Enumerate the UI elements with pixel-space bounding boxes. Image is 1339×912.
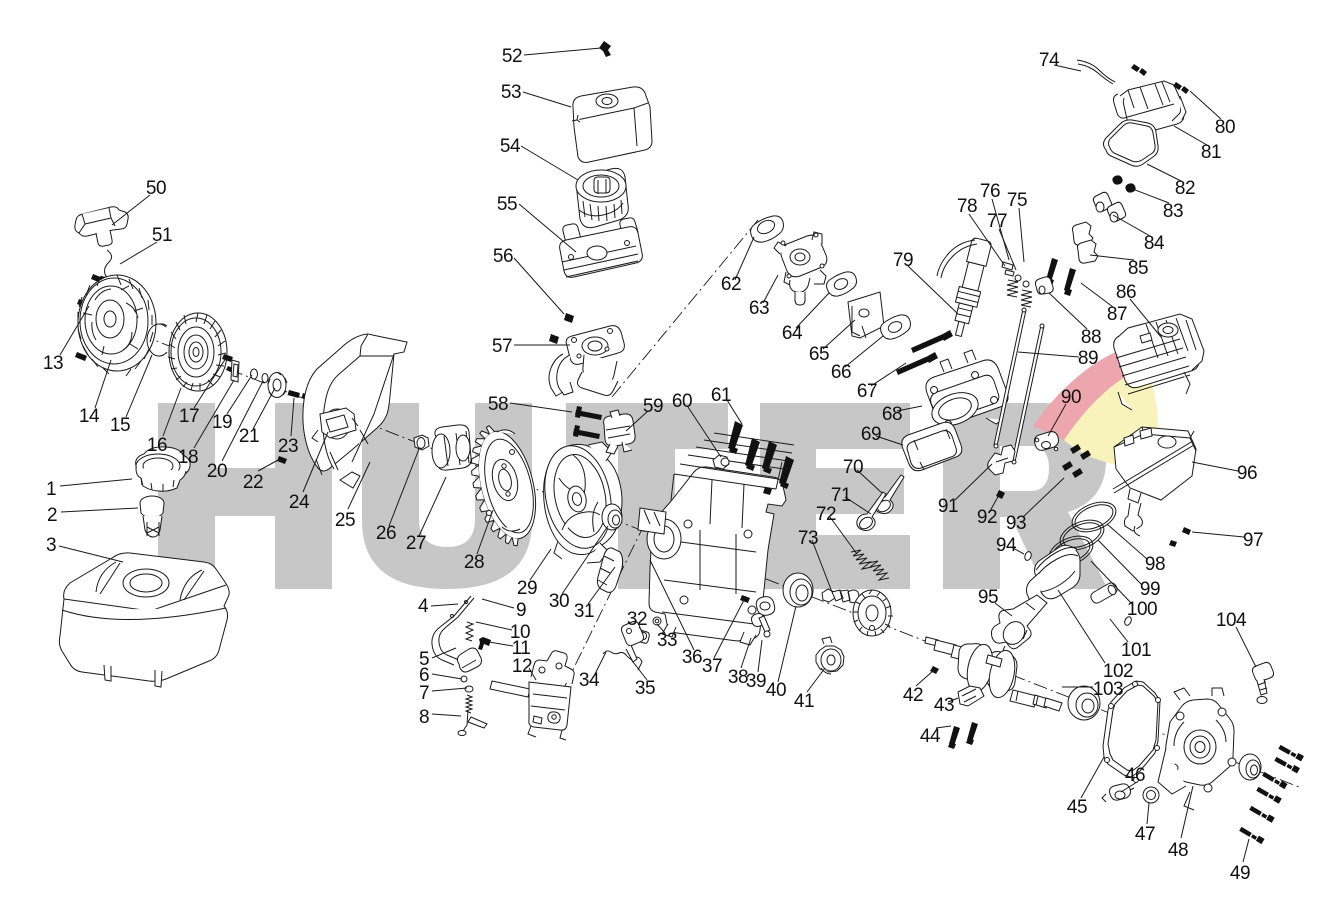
svg-text:56: 56 — [493, 246, 513, 267]
svg-text:13: 13 — [43, 353, 63, 374]
svg-text:97: 97 — [1243, 530, 1263, 551]
svg-text:37: 37 — [702, 656, 722, 677]
svg-text:95: 95 — [978, 587, 998, 608]
svg-text:77: 77 — [987, 211, 1007, 232]
svg-text:92: 92 — [977, 507, 997, 528]
svg-text:71: 71 — [831, 485, 851, 506]
svg-text:80: 80 — [1215, 117, 1235, 138]
svg-text:9: 9 — [516, 600, 526, 621]
svg-text:48: 48 — [1168, 840, 1188, 861]
svg-text:68: 68 — [882, 404, 902, 425]
svg-text:83: 83 — [1163, 201, 1183, 222]
svg-text:27: 27 — [406, 533, 426, 554]
svg-text:8: 8 — [419, 707, 429, 728]
svg-text:18: 18 — [178, 447, 198, 468]
svg-text:12: 12 — [512, 656, 532, 677]
svg-text:30: 30 — [549, 591, 569, 612]
svg-text:103: 103 — [1093, 679, 1123, 700]
svg-text:72: 72 — [816, 504, 836, 525]
svg-text:34: 34 — [579, 670, 600, 691]
svg-text:14: 14 — [79, 406, 100, 427]
svg-text:23: 23 — [278, 436, 298, 457]
svg-text:73: 73 — [798, 528, 818, 549]
svg-text:62: 62 — [721, 274, 741, 295]
svg-text:67: 67 — [857, 381, 877, 402]
svg-text:99: 99 — [1140, 579, 1160, 600]
svg-text:55: 55 — [497, 194, 517, 215]
svg-text:7: 7 — [419, 683, 429, 704]
svg-text:65: 65 — [809, 344, 829, 365]
svg-text:40: 40 — [766, 680, 786, 701]
svg-text:76: 76 — [980, 181, 1000, 202]
svg-text:20: 20 — [207, 461, 227, 482]
svg-text:90: 90 — [1061, 387, 1081, 408]
svg-text:57: 57 — [492, 336, 512, 357]
svg-text:35: 35 — [635, 678, 655, 699]
svg-text:96: 96 — [1237, 463, 1257, 484]
svg-text:104: 104 — [1216, 610, 1247, 631]
svg-text:70: 70 — [843, 457, 863, 478]
svg-text:60: 60 — [672, 391, 692, 412]
svg-text:46: 46 — [1125, 765, 1145, 786]
svg-text:63: 63 — [749, 298, 769, 319]
svg-text:81: 81 — [1201, 142, 1221, 163]
svg-text:64: 64 — [782, 323, 803, 344]
svg-text:28: 28 — [464, 552, 484, 573]
svg-text:32: 32 — [627, 609, 647, 630]
svg-text:93: 93 — [1006, 513, 1026, 534]
svg-text:84: 84 — [1144, 233, 1165, 254]
svg-text:101: 101 — [1121, 640, 1151, 661]
svg-text:58: 58 — [488, 394, 508, 415]
svg-text:15: 15 — [110, 415, 130, 436]
svg-text:33: 33 — [657, 630, 677, 651]
svg-text:79: 79 — [893, 250, 913, 271]
svg-text:66: 66 — [831, 362, 851, 383]
svg-text:36: 36 — [682, 647, 702, 668]
svg-text:59: 59 — [643, 396, 663, 417]
svg-text:100: 100 — [1127, 599, 1157, 620]
svg-text:78: 78 — [957, 196, 977, 217]
svg-text:26: 26 — [376, 523, 396, 544]
svg-text:49: 49 — [1230, 863, 1250, 884]
svg-text:4: 4 — [418, 596, 429, 617]
svg-text:19: 19 — [212, 412, 232, 433]
svg-text:53: 53 — [501, 82, 521, 103]
svg-text:41: 41 — [794, 691, 814, 712]
svg-text:42: 42 — [903, 685, 923, 706]
svg-text:51: 51 — [152, 225, 172, 246]
svg-text:85: 85 — [1128, 258, 1148, 279]
svg-text:43: 43 — [934, 695, 954, 716]
svg-text:16: 16 — [147, 435, 167, 456]
svg-text:31: 31 — [574, 601, 594, 622]
svg-text:3: 3 — [46, 535, 56, 556]
svg-text:91: 91 — [938, 496, 958, 517]
svg-text:22: 22 — [243, 472, 263, 493]
svg-text:47: 47 — [1135, 824, 1155, 845]
svg-text:61: 61 — [711, 385, 731, 406]
svg-text:21: 21 — [239, 426, 259, 447]
svg-text:17: 17 — [179, 406, 199, 427]
svg-text:54: 54 — [500, 136, 521, 157]
svg-text:94: 94 — [996, 535, 1017, 556]
svg-text:52: 52 — [502, 46, 522, 67]
svg-text:45: 45 — [1067, 797, 1087, 818]
svg-text:29: 29 — [517, 578, 537, 599]
svg-text:75: 75 — [1007, 190, 1027, 211]
svg-text:86: 86 — [1116, 282, 1136, 303]
svg-text:89: 89 — [1078, 348, 1098, 369]
svg-text:24: 24 — [289, 492, 310, 513]
svg-text:1: 1 — [46, 479, 56, 500]
svg-text:50: 50 — [146, 178, 166, 199]
svg-text:98: 98 — [1145, 554, 1165, 575]
svg-text:88: 88 — [1081, 327, 1101, 348]
svg-text:39: 39 — [746, 671, 766, 692]
svg-text:25: 25 — [335, 510, 355, 531]
svg-text:74: 74 — [1039, 50, 1060, 71]
svg-text:69: 69 — [861, 424, 881, 445]
svg-text:44: 44 — [920, 726, 941, 747]
svg-text:87: 87 — [1107, 304, 1127, 325]
svg-text:2: 2 — [47, 505, 57, 526]
svg-text:82: 82 — [1175, 178, 1195, 199]
